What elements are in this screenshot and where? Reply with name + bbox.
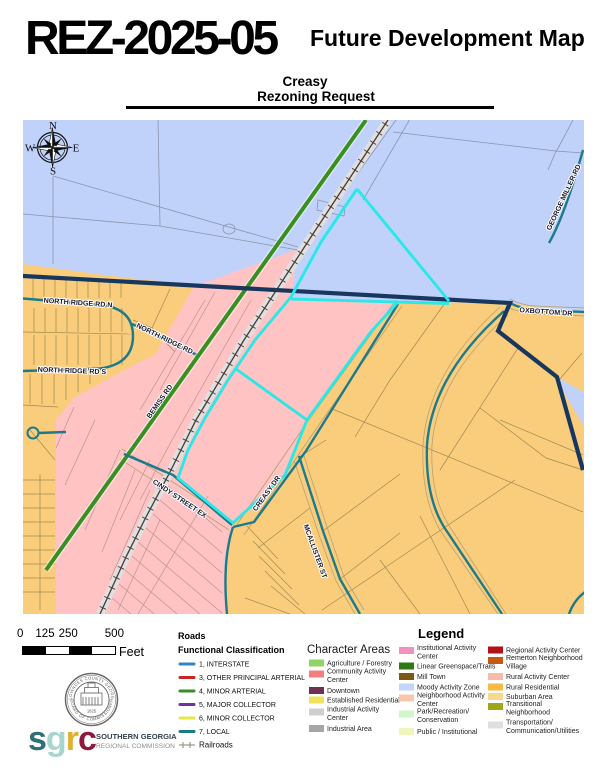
svg-text:Industrial Area: Industrial Area — [327, 726, 372, 733]
svg-text:Park/Recreation/: Park/Recreation/ — [417, 709, 469, 716]
svg-text:Rural Activity Center: Rural Activity Center — [506, 674, 570, 681]
svg-text:S: S — [50, 166, 56, 178]
svg-text:3, OTHER PRINCIPAL ARTERIAL: 3, OTHER PRINCIPAL ARTERIAL — [199, 675, 305, 682]
svg-text:Downtown: Downtown — [327, 688, 360, 695]
svg-text:Neighborhood: Neighborhood — [506, 710, 550, 717]
svg-text:Rural Residential: Rural Residential — [506, 685, 560, 692]
svg-text:Public / Institutional: Public / Institutional — [417, 729, 478, 736]
svg-text:Institutional Activity: Institutional Activity — [417, 645, 477, 652]
svg-text:Center: Center — [417, 654, 439, 661]
svg-text:Linear Greenspace/Trails: Linear Greenspace/Trails — [417, 664, 496, 671]
svg-text:Center: Center — [417, 701, 439, 708]
svg-text:N: N — [49, 120, 57, 132]
svg-text:Community Activity: Community Activity — [327, 669, 387, 676]
svg-text:Established Residential: Established Residential — [327, 698, 400, 705]
svg-text:Neighborhood Activity: Neighborhood Activity — [417, 693, 485, 700]
svg-text:Suburban Area: Suburban Area — [506, 694, 553, 701]
svg-text:4, MINOR ARTERIAL: 4, MINOR ARTERIAL — [199, 689, 266, 696]
svg-text:Moody Activity Zone: Moody Activity Zone — [417, 685, 480, 692]
svg-text:Conservation: Conservation — [417, 717, 458, 724]
svg-text:W: W — [25, 143, 36, 155]
svg-text:Communication/Utilities: Communication/Utilities — [506, 728, 580, 735]
svg-text:Remerton Neighborhood: Remerton Neighborhood — [506, 655, 583, 662]
svg-text:Center: Center — [327, 715, 349, 722]
svg-text:Regional Activity Center: Regional Activity Center — [506, 648, 581, 655]
svg-text:Transportation/: Transportation/ — [506, 720, 553, 727]
svg-text:1, INTERSTATE: 1, INTERSTATE — [199, 662, 250, 669]
svg-text:Agriculture / Forestry: Agriculture / Forestry — [327, 661, 392, 668]
svg-text:E: E — [73, 143, 80, 155]
svg-text:Mill Town: Mill Town — [417, 674, 446, 681]
svg-text:Railroads: Railroads — [199, 741, 233, 750]
svg-text:Center: Center — [327, 677, 349, 684]
svg-text:Village: Village — [506, 664, 527, 671]
svg-text:6, MINOR COLLECTOR: 6, MINOR COLLECTOR — [199, 716, 275, 723]
svg-text:Transitional: Transitional — [506, 701, 542, 708]
svg-text:Industrial Activity: Industrial Activity — [327, 707, 380, 714]
svg-text:7, LOCAL: 7, LOCAL — [199, 729, 230, 736]
svg-text:1825: 1825 — [87, 709, 97, 714]
svg-text:5, MAJOR COLLECTOR: 5, MAJOR COLLECTOR — [199, 702, 276, 709]
